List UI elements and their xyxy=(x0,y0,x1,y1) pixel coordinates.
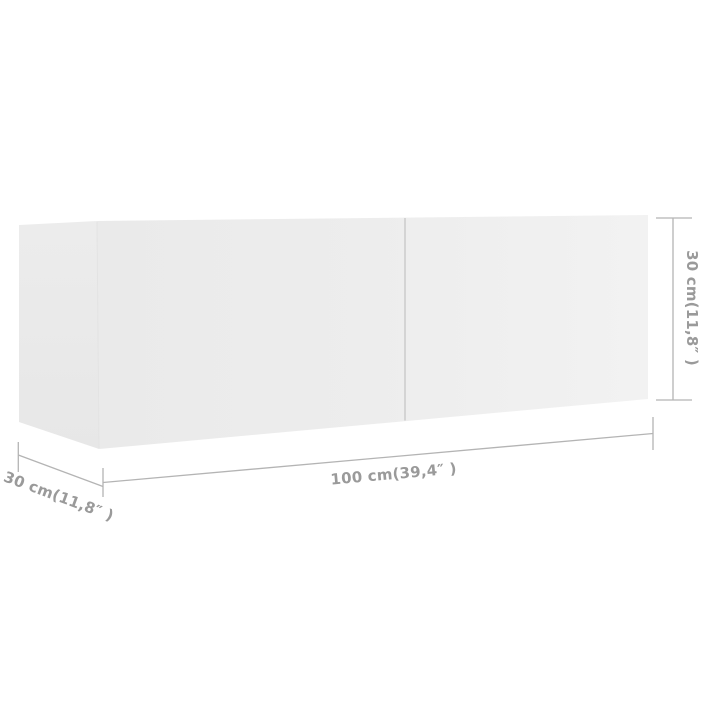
cabinet-front-face xyxy=(97,215,648,449)
cabinet xyxy=(19,215,648,449)
product-image-canvas: 30 cm(11,8″ ) 100 cm(39,4″ ) 30 cm(11,8″… xyxy=(0,0,720,720)
depth-dimension-label: 30 cm(11,8″ ) xyxy=(1,468,116,525)
cabinet-left-face xyxy=(19,221,99,449)
width-dimension-label: 100 cm(39,4″ ) xyxy=(330,459,458,488)
height-dimension-label: 30 cm(11,8″ ) xyxy=(683,250,701,366)
dimension-diagram: 30 cm(11,8″ ) 100 cm(39,4″ ) 30 cm(11,8″… xyxy=(0,0,720,720)
